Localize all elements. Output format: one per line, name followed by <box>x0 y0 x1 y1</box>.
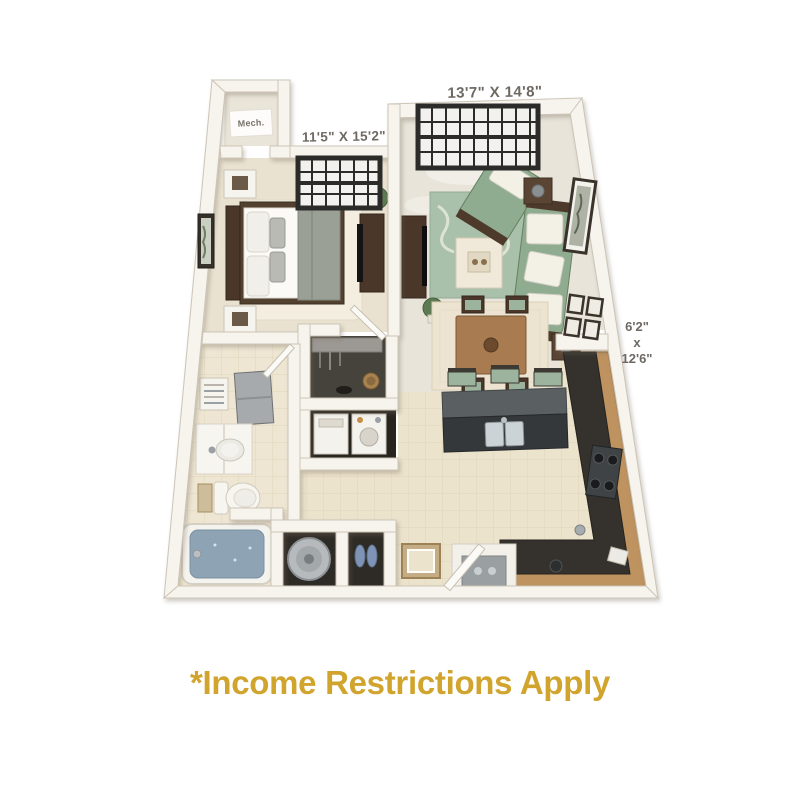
wall-closet-divider <box>298 398 398 410</box>
nightstand <box>224 170 256 198</box>
shelf-unit <box>200 378 228 410</box>
bar-stool <box>491 365 519 383</box>
kitchen-island <box>442 388 568 452</box>
closet-shelf <box>312 338 382 352</box>
stool-back <box>491 365 519 369</box>
slipper <box>355 545 365 567</box>
mech-closet: Mech. <box>229 109 272 137</box>
bed-accent-pillow <box>270 218 285 248</box>
wall-closet-bottom <box>298 458 398 470</box>
income-restrictions-caption: *Income Restrictions Apply <box>0 664 800 702</box>
island-sink-basin <box>485 422 504 447</box>
dresser-body <box>360 214 384 292</box>
island-sink-basin <box>505 421 524 446</box>
wall-mech-bottom-right <box>270 146 290 158</box>
sofa-pillow <box>526 214 563 245</box>
bedroom-wall-art <box>198 214 214 268</box>
shoe-closet-floor <box>348 532 384 586</box>
entry <box>402 544 440 578</box>
mech-label: Mech. <box>237 117 264 128</box>
appliance-knob <box>474 567 482 575</box>
dining-chair <box>462 296 484 313</box>
hamper <box>198 484 212 512</box>
tray-item <box>481 259 487 265</box>
living-room-dimension-label: 13'7" X 14'8" <box>447 83 542 102</box>
detergent-bottle <box>375 417 381 423</box>
bed-pillow <box>247 256 269 296</box>
water-heater-closet <box>288 538 330 580</box>
tv-screen <box>422 226 427 286</box>
patio-dim-separator: x <box>633 335 641 350</box>
stool-back <box>448 368 476 372</box>
water-sparkle <box>214 544 217 547</box>
bar-stool <box>448 368 476 386</box>
tv-console <box>402 216 427 298</box>
bathtub <box>182 524 272 584</box>
bed-headboard <box>226 206 240 300</box>
washer-lid <box>319 419 343 427</box>
stool-back <box>534 368 562 372</box>
wall-bedroom-bottom <box>202 332 300 344</box>
sofa-pillow <box>524 251 565 287</box>
stool-seat <box>491 369 519 383</box>
wall-closet-divider-2 <box>384 532 396 586</box>
coffee-table <box>456 238 502 288</box>
wall-bath-right <box>288 344 300 530</box>
table-lamp <box>532 185 544 197</box>
storage-basket-inner <box>367 377 376 386</box>
patio-dim-length: 12'6" <box>622 351 653 366</box>
wall-living-left <box>388 104 400 336</box>
bedroom-dresser <box>357 214 384 292</box>
gallery-frame <box>583 320 599 339</box>
stove-top <box>586 445 623 499</box>
bed-accent-pillow <box>270 252 285 282</box>
slipper <box>367 545 377 567</box>
doormat-inner <box>408 550 434 572</box>
bedroom-tv <box>357 224 363 282</box>
water-heater-cap <box>304 554 314 564</box>
gallery-frame <box>565 318 581 337</box>
nightstand <box>224 306 256 334</box>
pot <box>550 560 562 572</box>
end-table <box>524 178 552 204</box>
chair-seat <box>509 300 525 310</box>
stool-seat <box>534 372 562 386</box>
stool-seat <box>448 372 476 386</box>
bar-stool <box>534 368 562 386</box>
nightstand-cubby <box>232 176 248 190</box>
dryer-door <box>360 428 378 446</box>
gallery-frame <box>568 295 584 314</box>
wall-bottom-closets-top <box>271 520 396 532</box>
tub-faucet <box>193 550 201 558</box>
wall-mech-bottom-left <box>220 146 242 158</box>
dining-chair <box>506 296 528 313</box>
bedroom-dimension-label: 11'5" X 15'2" <box>302 128 386 144</box>
water-sparkle <box>249 547 252 550</box>
wall-bottom-outer <box>164 586 658 598</box>
detergent-bottle <box>357 417 363 423</box>
linen-shelf <box>200 378 228 410</box>
bed-pillow <box>247 212 269 252</box>
sink-faucet <box>209 447 216 454</box>
sink-basin-inner <box>221 443 239 457</box>
table-centerpiece <box>484 338 498 352</box>
appliance-knob <box>488 567 496 575</box>
water-sparkle <box>234 559 237 562</box>
patio-dimension-label: 6'2" x 12'6" <box>622 319 653 366</box>
patio-dim-width: 6'2" <box>625 319 649 334</box>
stove <box>586 445 623 499</box>
chair-seat <box>465 300 481 310</box>
living-window <box>418 106 538 168</box>
gallery-frame <box>587 297 603 316</box>
closet-item <box>336 386 352 394</box>
toilet-seat <box>234 489 256 507</box>
tray-item <box>472 259 478 265</box>
bath-cabinet <box>234 371 274 425</box>
wall-kitchen-stub <box>556 334 608 350</box>
bedroom-window <box>298 158 380 208</box>
wall-closet-divider-1 <box>336 532 348 586</box>
kettle <box>575 525 585 535</box>
nightstand-cubby <box>232 312 248 326</box>
island-bar-top <box>442 388 567 418</box>
bed-throw-blanket <box>298 206 340 300</box>
bed <box>226 202 344 304</box>
vanity-sink <box>196 424 252 474</box>
